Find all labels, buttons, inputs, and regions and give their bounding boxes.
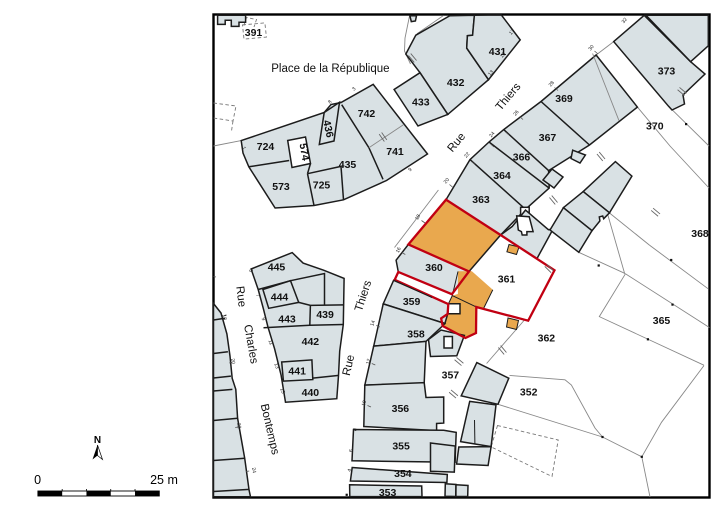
svg-text:373: 373 [658, 66, 676, 78]
svg-text:352: 352 [520, 387, 538, 399]
svg-text:439: 439 [316, 309, 334, 321]
svg-text:435: 435 [339, 159, 357, 171]
svg-text:440: 440 [302, 387, 320, 399]
svg-text:360: 360 [425, 262, 443, 274]
svg-text:366: 366 [513, 152, 531, 164]
svg-text:25 m: 25 m [150, 473, 178, 487]
svg-text:354: 354 [394, 468, 412, 480]
svg-text:363: 363 [472, 194, 490, 206]
svg-text:432: 432 [447, 77, 465, 89]
svg-text:356: 356 [392, 403, 410, 415]
svg-text:442: 442 [302, 336, 320, 348]
svg-text:359: 359 [403, 296, 421, 308]
svg-text:Rue: Rue [233, 285, 247, 307]
svg-text:368: 368 [691, 228, 709, 240]
svg-text:441: 441 [288, 366, 306, 378]
svg-text:357: 357 [442, 370, 460, 382]
svg-text:724: 724 [257, 141, 275, 153]
svg-text:573: 573 [272, 181, 290, 193]
svg-text:358: 358 [407, 329, 425, 341]
svg-text:445: 445 [268, 262, 286, 274]
svg-text:391: 391 [245, 27, 263, 39]
svg-text:742: 742 [358, 108, 376, 120]
svg-text:Place de la République: Place de la République [271, 63, 389, 75]
svg-text:362: 362 [538, 333, 556, 345]
svg-text:0: 0 [34, 473, 41, 487]
svg-text:741: 741 [386, 146, 404, 158]
svg-text:361: 361 [498, 274, 516, 286]
svg-text:365: 365 [653, 315, 671, 327]
svg-text:369: 369 [555, 93, 573, 105]
svg-text:444: 444 [271, 292, 289, 304]
svg-text:367: 367 [539, 132, 557, 144]
svg-text:N: N [94, 435, 101, 446]
svg-text:433: 433 [412, 97, 430, 109]
svg-text:364: 364 [493, 170, 511, 182]
svg-text:370: 370 [646, 121, 664, 133]
svg-text:355: 355 [392, 441, 410, 453]
svg-text:353: 353 [379, 487, 397, 499]
svg-text:443: 443 [278, 314, 296, 326]
svg-text:725: 725 [313, 180, 331, 192]
